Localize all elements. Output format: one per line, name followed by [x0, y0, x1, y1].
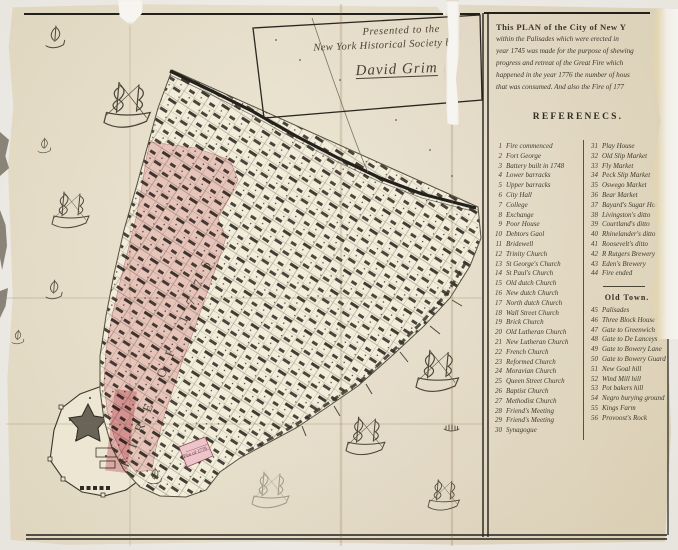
reference-label: Exchange	[506, 211, 584, 221]
reference-item: 51New Goal hill	[588, 365, 668, 375]
reference-number: 17	[492, 299, 502, 309]
reference-item: 19Brick Church	[492, 318, 584, 328]
reference-number: 55	[588, 404, 598, 414]
reference-number: 19	[492, 318, 502, 328]
reference-item: 22French Church	[492, 348, 584, 358]
reference-number: 50	[588, 355, 598, 365]
reference-number: 21	[492, 338, 502, 348]
reference-number: 53	[588, 384, 598, 394]
reference-number: 44	[588, 269, 598, 279]
reference-number: 20	[492, 328, 502, 338]
reference-label: Baptist Church	[506, 387, 584, 397]
title-line: year 1745 was made for the purpose of sh…	[496, 45, 656, 57]
reference-label: Synagogue	[506, 426, 584, 436]
reference-number: 42	[588, 250, 598, 260]
reference-label: Lower barracks	[506, 171, 584, 181]
reference-number: 16	[492, 289, 502, 299]
reference-number: 14	[492, 269, 502, 279]
reference-item: 8Exchange	[492, 211, 584, 221]
reference-item: 49Gate to Bowery Lane	[588, 345, 668, 355]
reference-label: Bridewell	[506, 240, 584, 250]
references-heading: REFERENECS.	[487, 112, 669, 122]
reference-label: New Goal hill	[602, 365, 668, 375]
reference-item: 9Poor House	[492, 220, 584, 230]
reference-label: North dutch Church	[506, 299, 584, 309]
reference-item: 21New Lutheran Church	[492, 338, 584, 348]
reference-label: Friend's Meeting	[506, 407, 584, 417]
reference-item: 20Old Lutheran Church	[492, 328, 584, 338]
paper-damage-right-edge	[649, 9, 678, 339]
reference-label: Fort George	[506, 152, 584, 162]
ship-sketch	[12, 330, 24, 344]
reference-label: Old dutch Church	[506, 279, 584, 289]
reference-number: 41	[588, 240, 598, 250]
reference-item: 26Baptist Church	[492, 387, 584, 397]
reference-item: 4Lower barracks	[492, 171, 584, 181]
title-line: happened in the year 1776 the number of …	[496, 69, 656, 81]
reference-item: 6City Hall	[492, 191, 584, 201]
title-line: This PLAN of the City of New Y	[496, 21, 656, 33]
reference-item: 12Trinity Church	[492, 250, 584, 260]
reference-item: 56Provoost's Rock	[588, 414, 668, 424]
reference-number: 3	[492, 162, 502, 172]
reference-number: 25	[492, 377, 502, 387]
reference-number: 34	[588, 171, 598, 181]
reference-label: French Church	[506, 348, 584, 358]
reference-number: 33	[588, 162, 598, 172]
reference-label: Methodist Church	[506, 397, 584, 407]
reference-item: 13St George's Church	[492, 260, 584, 270]
reference-item: 15Old dutch Church	[492, 279, 584, 289]
reference-label: Poor House	[506, 220, 584, 230]
reference-number: 13	[492, 260, 502, 270]
reference-number: 1	[492, 142, 502, 152]
title-line: within the Palisades which were erected …	[496, 33, 656, 45]
section-divider-dash	[603, 286, 645, 287]
reference-number: 36	[588, 191, 598, 201]
reference-number: 6	[492, 191, 502, 201]
reference-number: 38	[588, 211, 598, 221]
reference-number: 49	[588, 345, 598, 355]
reference-item: 10Debtors Gaol	[492, 230, 584, 240]
reference-number: 9	[492, 220, 502, 230]
references-left-column: 1Fire commenced2Fort George3Battery buil…	[492, 142, 584, 436]
reference-item: 7College	[492, 201, 584, 211]
reference-item: 23Reformed Church	[492, 358, 584, 368]
reference-item: 17North dutch Church	[492, 299, 584, 309]
reference-number: 28	[492, 407, 502, 417]
reference-label: Upper barracks	[506, 181, 584, 191]
reference-number: 29	[492, 416, 502, 426]
reference-item: 24Moravian Church	[492, 367, 584, 377]
ship-sketch	[38, 138, 51, 153]
reference-label: Provoost's Rock	[602, 414, 668, 424]
reference-number: 32	[588, 152, 598, 162]
reference-number: 18	[492, 309, 502, 319]
reference-number: 39	[588, 220, 598, 230]
reference-label: Moravian Church	[506, 367, 584, 377]
reference-label: City Hall	[506, 191, 584, 201]
title-block: This PLAN of the City of New Ywithin the…	[496, 21, 656, 93]
reference-number: 10	[492, 230, 502, 240]
reference-item: 27Methodist Church	[492, 397, 584, 407]
reference-item: 11Bridewell	[492, 240, 584, 250]
reference-item: 48Gate to De Lanceys	[588, 335, 668, 345]
reference-item: 1Fire commenced	[492, 142, 584, 152]
reference-item: 3Battery built in 1748	[492, 162, 584, 172]
reference-label: Old Lutheran Church	[506, 328, 584, 338]
reference-label: Gate to Bowery Lane	[602, 345, 668, 355]
reference-item: 14St Paul's Church	[492, 269, 584, 279]
ship-sketch	[46, 280, 62, 299]
reference-label: Wall Street Church	[506, 309, 584, 319]
reference-label: Debtors Gaol	[506, 230, 584, 240]
reference-number: 12	[492, 250, 502, 260]
reference-item: 53Pot bakers hill	[588, 384, 668, 394]
reference-item: 55Kings Farm	[588, 404, 668, 414]
reference-number: 30	[492, 426, 502, 436]
ship-sketch	[346, 417, 385, 455]
reference-number: 23	[492, 358, 502, 368]
scanned-map-screenshot: FIRE OF 1776 Fire of 1778	[0, 0, 678, 550]
reference-number: 52	[588, 375, 598, 385]
reference-label: Battery built in 1748	[506, 162, 584, 172]
reference-item: 50Gate to Bowery Guard house	[588, 355, 668, 365]
reference-item: 30Synagogue	[492, 426, 584, 436]
reference-item: 2Fort George	[492, 152, 584, 162]
reference-label: Wind Mill hill	[602, 375, 668, 385]
reference-label: St George's Church	[506, 260, 584, 270]
reference-number: 51	[588, 365, 598, 375]
reference-item: 40Rhinelander's ditto	[588, 230, 668, 240]
reference-label: St Paul's Church	[506, 269, 584, 279]
ship-sketch	[428, 480, 459, 510]
reference-number: 48	[588, 335, 598, 345]
ship-sketch	[252, 472, 289, 508]
reference-number: 4	[492, 171, 502, 181]
reference-item: 54Negro burying ground	[588, 394, 668, 404]
references-panel: This PLAN of the City of New Ywithin the…	[487, 14, 669, 537]
reference-number: 8	[492, 211, 502, 221]
ship-sketch	[104, 83, 150, 128]
reference-item: 52Wind Mill hill	[588, 375, 668, 385]
reference-label: College	[506, 201, 584, 211]
title-line: that was consumed. And also the Fire of …	[496, 81, 656, 93]
reference-number: 45	[588, 306, 598, 316]
reference-label: Gate to Bowery Guard house	[602, 355, 668, 365]
reference-label: Negro burying ground	[602, 394, 668, 404]
reference-item: 28Friend's Meeting	[492, 407, 584, 417]
reference-label: New dutch Church	[506, 289, 584, 299]
reference-item: 41Roosevelt's ditto	[588, 240, 668, 250]
reference-label: New Lutheran Church	[506, 338, 584, 348]
reference-number: 26	[492, 387, 502, 397]
reference-number: 7	[492, 201, 502, 211]
reference-label: Friend's Meeting	[506, 416, 584, 426]
reference-item: 39Courtland's ditto	[588, 220, 668, 230]
reference-number: 35	[588, 181, 598, 191]
reference-item: 29Friend's Meeting	[492, 416, 584, 426]
reference-label: Brick Church	[506, 318, 584, 328]
reference-number: 5	[492, 181, 502, 191]
reference-number: 2	[492, 152, 502, 162]
title-line: progress and retreat of the Great Fire w…	[496, 57, 656, 69]
reference-number: 47	[588, 326, 598, 336]
reference-number: 31	[588, 142, 598, 152]
reference-label: Pot bakers hill	[602, 384, 668, 394]
reference-number: 40	[588, 230, 598, 240]
reference-number: 46	[588, 316, 598, 326]
reference-item: 18Wall Street Church	[492, 309, 584, 319]
reference-number: 15	[492, 279, 502, 289]
reference-item: 5Upper barracks	[492, 181, 584, 191]
reference-label: Fire commenced	[506, 142, 584, 152]
reference-number: 22	[492, 348, 502, 358]
reference-label: Kings Farm	[602, 404, 668, 414]
reference-number: 24	[492, 367, 502, 377]
reference-item: 16New dutch Church	[492, 289, 584, 299]
ship-sketch	[46, 26, 65, 48]
reference-number: 11	[492, 240, 502, 250]
reference-number: 37	[588, 201, 598, 211]
reference-label: Trinity Church	[506, 250, 584, 260]
reference-number: 27	[492, 397, 502, 407]
ship-sketch	[52, 192, 89, 228]
reference-label: Reformed Church	[506, 358, 584, 368]
reference-number: 54	[588, 394, 598, 404]
reference-number: 43	[588, 260, 598, 270]
reference-label: Queen Street Church	[506, 377, 584, 387]
reference-number: 56	[588, 414, 598, 424]
reference-item: 25Queen Street Church	[492, 377, 584, 387]
